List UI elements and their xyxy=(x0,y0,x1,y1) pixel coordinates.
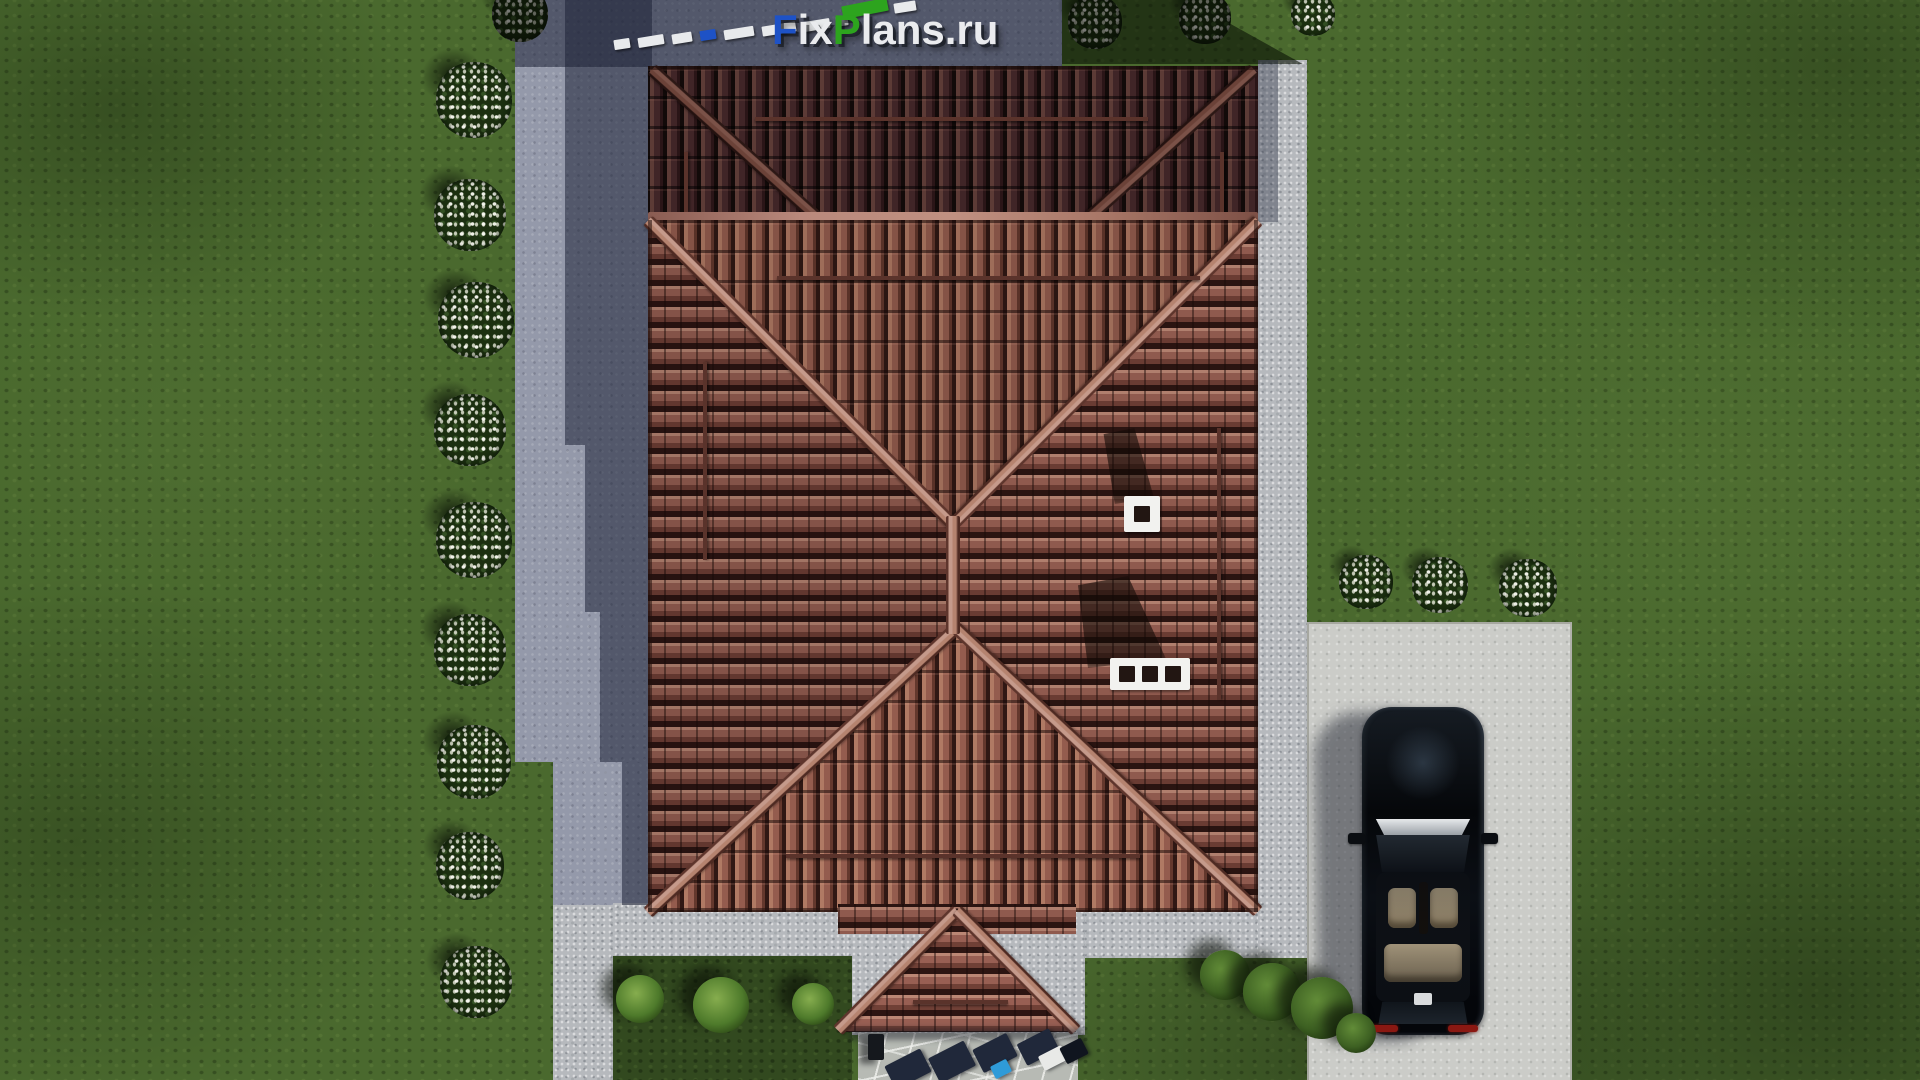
flower-bush xyxy=(434,614,506,686)
eave-edge-west xyxy=(648,220,652,912)
car-mirror-left xyxy=(1348,833,1365,844)
chimney-2-flue-1 xyxy=(1119,666,1135,682)
chimney-2-flue-2 xyxy=(1142,666,1158,682)
chimney-1-flue xyxy=(1134,506,1150,522)
path-lamp-post xyxy=(868,1034,884,1060)
flower-bush-shaded xyxy=(1068,0,1122,49)
flower-bush xyxy=(1412,557,1468,613)
car xyxy=(1362,707,1484,1035)
flower-bush xyxy=(434,179,506,251)
house-shadow-left-3 xyxy=(600,612,652,762)
upper-hip-left xyxy=(648,65,823,224)
chimney-2 xyxy=(1110,658,1190,690)
eave-edge-east xyxy=(1254,220,1258,912)
chimney-1 xyxy=(1124,496,1160,532)
flower-bush-shaded xyxy=(1179,0,1231,44)
flower-bush xyxy=(438,282,514,358)
upper-eave-edge xyxy=(648,66,1258,70)
flower-bush xyxy=(1339,555,1393,609)
car-mirror-right xyxy=(1481,833,1498,844)
logo-letters-ix: ix xyxy=(798,6,833,53)
snow-rail-north xyxy=(777,276,1200,280)
green-bush xyxy=(1336,1013,1376,1053)
house-shadow-left-1 xyxy=(565,0,652,445)
car-cowl xyxy=(1372,819,1474,835)
logo-letters-rest: lans.ru xyxy=(861,6,999,53)
flower-bush xyxy=(434,394,506,466)
car-hood-sheen xyxy=(1374,714,1472,812)
green-bush xyxy=(693,977,749,1033)
house-shadow-left-2 xyxy=(585,445,652,612)
car-glass-tint xyxy=(1376,872,1470,1002)
roof-main xyxy=(648,220,1258,912)
flower-bush-shaded xyxy=(492,0,548,42)
chimney-2-flue-3 xyxy=(1165,666,1181,682)
green-bush xyxy=(792,983,834,1025)
car-sunroof xyxy=(1376,872,1470,1002)
snow-rail-upper-east xyxy=(1220,152,1224,217)
green-bush xyxy=(616,975,664,1023)
flower-bush xyxy=(440,946,512,1018)
car-deck-box xyxy=(1414,993,1432,1005)
roof-upper-section xyxy=(648,66,1258,220)
eave-shadow-right xyxy=(1258,60,1278,222)
main-ridge xyxy=(946,516,960,634)
snow-rail-porch xyxy=(913,1000,1008,1004)
flower-bush xyxy=(437,725,511,799)
car-rear-window xyxy=(1377,1002,1470,1024)
snow-rail-east xyxy=(1217,428,1221,700)
flower-bush xyxy=(1291,0,1335,36)
flower-bush xyxy=(436,502,512,578)
upper-hip-right xyxy=(1084,65,1259,224)
logo-letter-p: P xyxy=(833,6,861,53)
left-walkway-bottom xyxy=(553,905,613,1080)
aerial-house-render: FixPlans.ru xyxy=(0,0,1920,1080)
watermark-logo: FixPlans.ru xyxy=(772,6,998,54)
snow-rail-west xyxy=(703,362,707,560)
snow-rail-upper xyxy=(755,117,1148,121)
snow-rail-south xyxy=(786,854,1140,858)
flower-bush xyxy=(1499,559,1557,617)
snow-rail-upper-west xyxy=(684,152,688,212)
flower-bush xyxy=(436,62,512,138)
logo-letter-f: F xyxy=(772,6,798,53)
car-taillight-right xyxy=(1448,1025,1478,1032)
flower-bush xyxy=(436,832,504,900)
car-windshield xyxy=(1374,835,1472,872)
